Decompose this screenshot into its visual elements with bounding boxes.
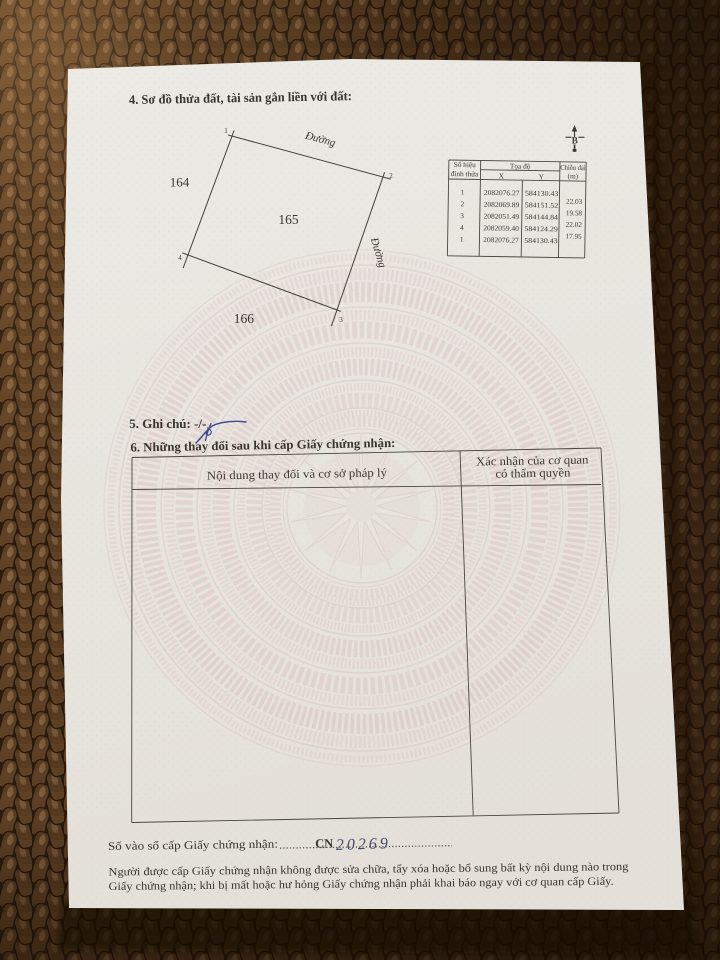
svg-text:2082076.27: 2082076.27 xyxy=(484,189,520,198)
svg-text:1: 1 xyxy=(224,127,228,135)
svg-text:20269: 20269 xyxy=(336,835,392,854)
svg-text:2082076.27: 2082076.27 xyxy=(483,236,519,245)
svg-text:584124.29: 584124.29 xyxy=(524,225,558,234)
svg-text:có thẩm quyền: có thẩm quyền xyxy=(495,465,570,480)
svg-text:Y: Y xyxy=(539,172,545,181)
svg-text:(m): (m) xyxy=(568,171,579,180)
svg-text:B: B xyxy=(572,136,578,146)
svg-text:22.02: 22.02 xyxy=(566,221,583,229)
svg-text:22.03: 22.03 xyxy=(566,198,583,206)
svg-text:Số vào sổ cấp Giấy chứng nhận:: Số vào sổ cấp Giấy chứng nhận: xyxy=(108,838,278,853)
svg-text:584151.52: 584151.52 xyxy=(525,201,559,210)
svg-text:1: 1 xyxy=(460,236,464,244)
svg-text:CN: CN xyxy=(315,836,333,850)
svg-text:584130.43: 584130.43 xyxy=(524,237,558,246)
svg-text:2082059.40: 2082059.40 xyxy=(483,224,519,233)
svg-text:2: 2 xyxy=(460,200,464,208)
svg-text:2082051.49: 2082051.49 xyxy=(483,212,519,221)
svg-text:166: 166 xyxy=(234,311,255,326)
svg-text:3: 3 xyxy=(339,316,343,324)
svg-text:165: 165 xyxy=(278,212,299,227)
svg-text:584130.43: 584130.43 xyxy=(525,189,559,198)
svg-text:164: 164 xyxy=(170,175,190,190)
svg-text:19.58: 19.58 xyxy=(566,209,583,217)
svg-text:3: 3 xyxy=(460,212,464,220)
svg-text:4: 4 xyxy=(178,254,182,262)
svg-text:4: 4 xyxy=(460,224,464,232)
svg-text:Số hiệu: Số hiệu xyxy=(454,160,477,169)
svg-text:2082069.89: 2082069.89 xyxy=(484,201,520,210)
svg-text:5. Ghi chú: -/-: 5. Ghi chú: -/- xyxy=(129,417,206,431)
svg-text:1: 1 xyxy=(461,188,465,196)
svg-text:Tọa độ: Tọa độ xyxy=(510,161,531,170)
svg-text:2: 2 xyxy=(389,172,393,180)
svg-text:584144.84: 584144.84 xyxy=(525,213,559,222)
svg-text:17.95: 17.95 xyxy=(565,232,582,240)
svg-text:đỉnh thửa: đỉnh thửa xyxy=(451,169,480,178)
svg-text:X: X xyxy=(499,171,505,180)
